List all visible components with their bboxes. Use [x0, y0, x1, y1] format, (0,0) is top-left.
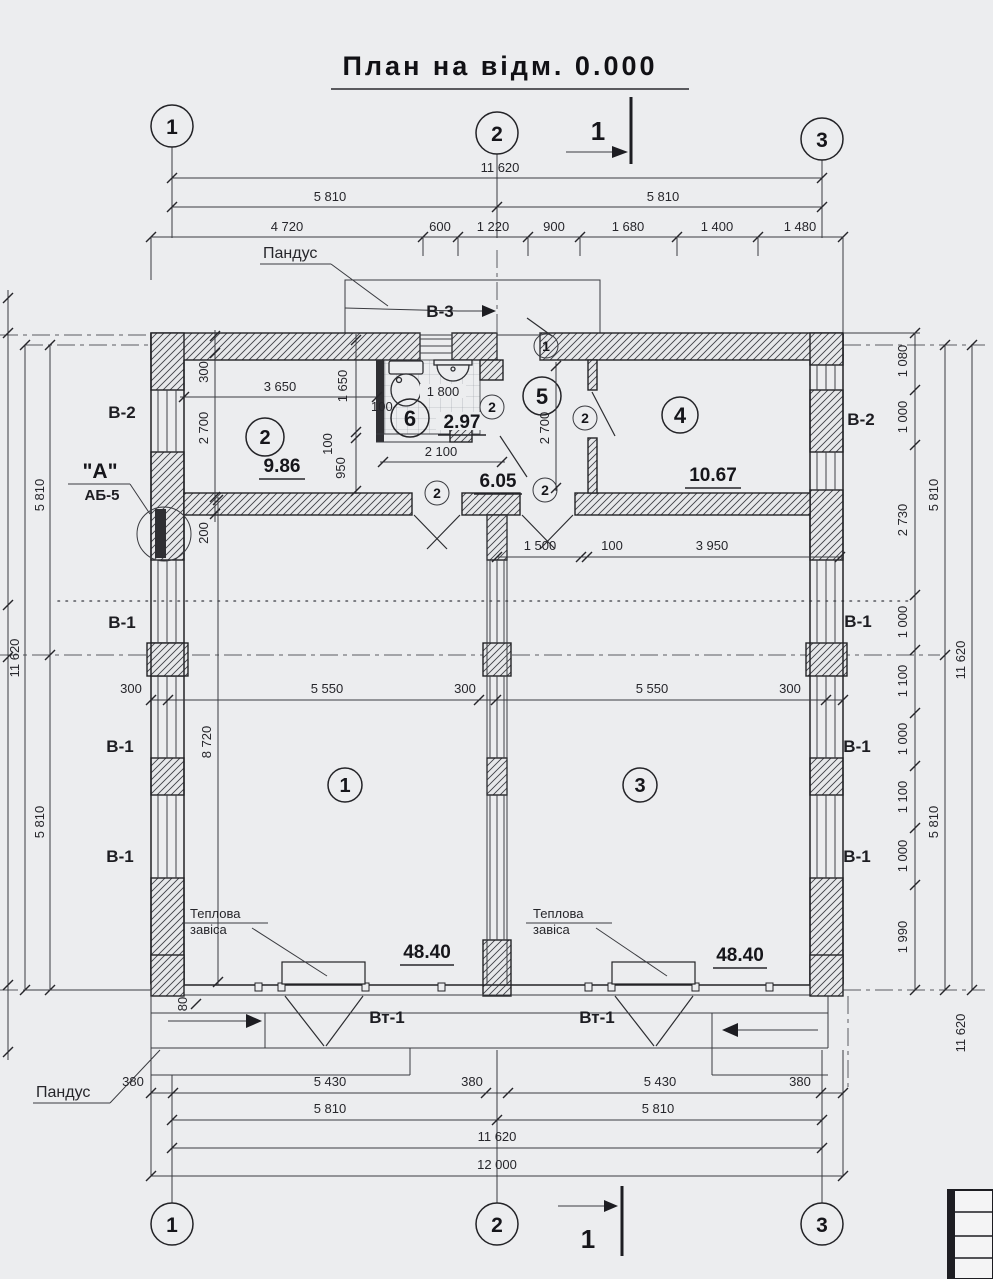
- dim-bot-half-right: 5 810: [642, 1101, 675, 1116]
- axis-bubbles-top: 1 2 3: [151, 105, 843, 160]
- dim-right-half-top: 5 810: [926, 479, 941, 512]
- label-ab5: АБ-5: [85, 487, 120, 504]
- room-number-4: 4: [674, 403, 687, 428]
- dim-right-total: 11 620: [953, 641, 968, 680]
- dim-left-half-top: 5 810: [32, 479, 47, 512]
- dim-right-half-bottom: 5 810: [926, 806, 941, 839]
- section-mark-top: 1: [566, 97, 631, 164]
- axis-bubbles-bottom: 1 2 3: [151, 1203, 843, 1245]
- dim-top-half-left: 5 810: [314, 189, 347, 204]
- thermal-curtain-right: [612, 962, 695, 984]
- dim-1800: 1 800: [427, 384, 460, 399]
- dim-2700b: 2 700: [537, 412, 552, 445]
- dim-right-seg-2: 2 730: [895, 504, 910, 537]
- dim-right-seg-1: 1 000: [895, 401, 910, 434]
- dim-mid-3: 5 550: [636, 681, 669, 696]
- dim-left-half-bottom: 5 810: [32, 806, 47, 839]
- room-number-5: 5: [536, 384, 548, 409]
- dim-3950: 3 950: [696, 538, 729, 553]
- dim-right-seg-5: 1 000: [895, 723, 910, 756]
- dim-bot-seg-2: 380: [461, 1074, 483, 1089]
- room-area-3: 48.40: [716, 945, 764, 966]
- ramp-bottom: Пандус: [33, 996, 828, 1103]
- label-heat-left-2: завіса: [190, 922, 227, 937]
- label-v1-right-1: В-1: [844, 612, 871, 631]
- section-mark-bottom: 1: [558, 1186, 622, 1256]
- dim-2100: 2 100: [425, 444, 458, 459]
- thermal-curtain-left: [282, 962, 365, 984]
- drawing-sheet: План на відм. 0.000 1 2 3 1: [0, 0, 993, 1279]
- dim-mid-4: 300: [779, 681, 801, 696]
- label-vt1-left: Вт-1: [369, 1008, 405, 1027]
- dim-top-total: 11 620: [481, 160, 520, 175]
- dim-top-seg-1: 600: [429, 219, 451, 234]
- ramp-top: В-3 Пандус: [260, 245, 600, 335]
- label-vt1-right: Вт-1: [579, 1008, 615, 1027]
- dim-top-seg-2: 1 220: [477, 219, 510, 234]
- dim-col-right: 1 080 1 000 2 730 1 000 1 100 1 000 1 10…: [843, 328, 977, 1052]
- detail-wall-section: [155, 509, 166, 558]
- dim-8720: 8 720: [199, 726, 214, 759]
- dim-bot-seg-3: 5 430: [644, 1074, 677, 1089]
- dim-right-total-b: 11 620: [953, 1014, 968, 1053]
- dim-80: 80: [175, 997, 190, 1011]
- door-mark-1-label: 1: [542, 338, 550, 354]
- door-mark-2b-label: 2: [581, 410, 589, 426]
- floor-plan-canvas: План на відм. 0.000 1 2 3 1: [0, 0, 993, 1279]
- axis-number-2-top: 2: [491, 123, 503, 146]
- label-pandus-bottom: Пандус: [36, 1084, 90, 1101]
- dim-top-seg-6: 1 480: [784, 219, 817, 234]
- dim-mid-0: 300: [120, 681, 142, 696]
- dim-1650: 1 650: [335, 370, 350, 403]
- door-mark-2d-label: 2: [541, 482, 549, 498]
- axis-number-1-bottom: 1: [166, 1214, 178, 1237]
- dim-200: 200: [196, 522, 211, 544]
- dim-right-seg-7: 1 000: [895, 840, 910, 873]
- page-title: План на відм. 0.000: [343, 51, 658, 81]
- dim-mid-1: 5 550: [311, 681, 344, 696]
- room-number-3: 3: [634, 775, 645, 797]
- label-heat-left-1: Теплова: [190, 906, 241, 921]
- dim-100a: 100: [371, 399, 393, 414]
- door-mark-2a-label: 2: [488, 399, 496, 415]
- dim-left-total: 11 620: [7, 639, 22, 678]
- label-v3: В-3: [426, 302, 453, 321]
- dim-100b: 100: [320, 433, 335, 455]
- room-number-2: 2: [259, 427, 270, 449]
- dim-top-half-right: 5 810: [647, 189, 680, 204]
- label-heat-right-1: Теплова: [533, 906, 584, 921]
- axis-number-3-bottom: 3: [816, 1214, 828, 1237]
- label-pandus-top: Пандус: [263, 245, 317, 262]
- dim-right-seg-0: 1 080: [895, 345, 910, 378]
- dim-bot-seg-0: 380: [122, 1074, 144, 1089]
- dim-rows-bottom: 380 5 430 380 5 430 380 5 810 5 810 11 6…: [122, 1074, 848, 1181]
- dim-3650: 3 650: [264, 379, 297, 394]
- label-v1-right-2: В-1: [843, 737, 870, 756]
- label-mark-a: "А": [82, 460, 117, 483]
- label-v1-right-3: В-1: [843, 847, 870, 866]
- axis-number-2-bottom: 2: [491, 1214, 503, 1237]
- axis-number-3-top: 3: [816, 129, 828, 152]
- room-area-5: 6.05: [480, 471, 517, 492]
- title-block-corner: [948, 1190, 993, 1279]
- dim-right-seg-8: 1 990: [895, 921, 910, 954]
- dim-top-seg-4: 1 680: [612, 219, 645, 234]
- room-number-6: 6: [404, 406, 416, 431]
- room-number-1: 1: [339, 775, 350, 797]
- equipment-labels: Теплова завіса Теплова завіса Вт-1 Вт-1: [182, 906, 667, 1027]
- label-v1-left-1: В-1: [108, 613, 135, 632]
- dim-top-seg-0: 4 720: [271, 219, 304, 234]
- dim-right-seg-3: 1 000: [895, 606, 910, 639]
- section-mark-label-bottom: 1: [581, 1224, 595, 1254]
- label-heat-right-2: завіса: [533, 922, 570, 937]
- door-mark-2c-label: 2: [433, 485, 441, 501]
- dim-2700: 2 700: [196, 412, 211, 445]
- label-v2-left: В-2: [108, 403, 135, 422]
- label-v2-right: В-2: [847, 410, 874, 429]
- drawing-title: План на відм. 0.000: [331, 51, 689, 89]
- room-area-6: 2.97: [444, 412, 481, 433]
- dim-bot-overall: 12 000: [477, 1157, 517, 1172]
- dim-bot-seg-1: 5 430: [314, 1074, 347, 1089]
- dim-right-seg-6: 1 100: [895, 781, 910, 814]
- room-area-1: 48.40: [403, 942, 451, 963]
- room-area-2: 9.86: [264, 456, 301, 477]
- axis-number-1-top: 1: [166, 116, 178, 139]
- dim-mid-2: 300: [454, 681, 476, 696]
- dim-950: 950: [333, 457, 348, 479]
- label-v1-left-3: В-1: [106, 847, 133, 866]
- dim-top-seg-3: 900: [543, 219, 565, 234]
- room-area-4: 10.67: [689, 465, 737, 486]
- dim-1500: 1 500: [524, 538, 557, 553]
- dim-bot-total: 11 620: [478, 1129, 517, 1144]
- section-mark-label: 1: [591, 116, 605, 146]
- walls: [147, 333, 847, 996]
- label-v1-left-2: В-1: [106, 737, 133, 756]
- dim-100c: 100: [601, 538, 623, 553]
- dim-bot-seg-4: 380: [789, 1074, 811, 1089]
- dim-300: 300: [196, 361, 211, 383]
- dim-top-seg-5: 1 400: [701, 219, 734, 234]
- dim-right-seg-4: 1 100: [895, 665, 910, 698]
- dim-bot-half-left: 5 810: [314, 1101, 347, 1116]
